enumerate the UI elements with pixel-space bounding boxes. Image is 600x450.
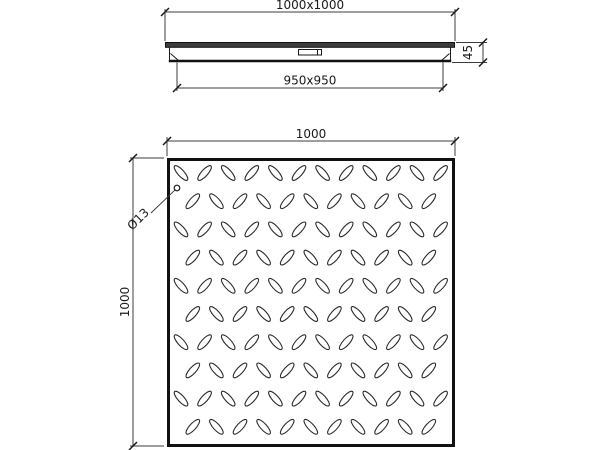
plan-view: 1000 1000 Ø13 [118,127,459,450]
stud-callout-circle [174,185,180,191]
dim-clear-opening: 950x950 [173,63,447,93]
dim-height-label: 45 [461,45,475,60]
dim-clear-opening-label: 950x950 [284,74,337,88]
dim-height: 45 [452,39,487,67]
cover-plate-section [166,43,455,48]
drawing-canvas: 1000x1000 950x950 [0,0,600,450]
lifting-slot-outline [299,50,322,56]
body-right-chamfer [442,54,450,61]
technical-drawing: 1000x1000 950x950 [0,0,600,450]
dim-plan-width-label: 1000 [296,127,327,141]
dim-plan-height: 1000 [118,154,164,450]
body-left-chamfer [171,54,179,61]
dim-overall-width: 1000x1000 [161,0,459,41]
stud-diameter-label: Ø13 [124,205,151,232]
dim-plan-height-label: 1000 [118,287,132,318]
dim-plan-width: 1000 [163,127,459,156]
cover-body-section [169,47,451,61]
dim-overall-width-label: 1000x1000 [276,0,344,12]
lifting-slot [299,50,322,56]
section-view: 1000x1000 950x950 [161,0,487,92]
